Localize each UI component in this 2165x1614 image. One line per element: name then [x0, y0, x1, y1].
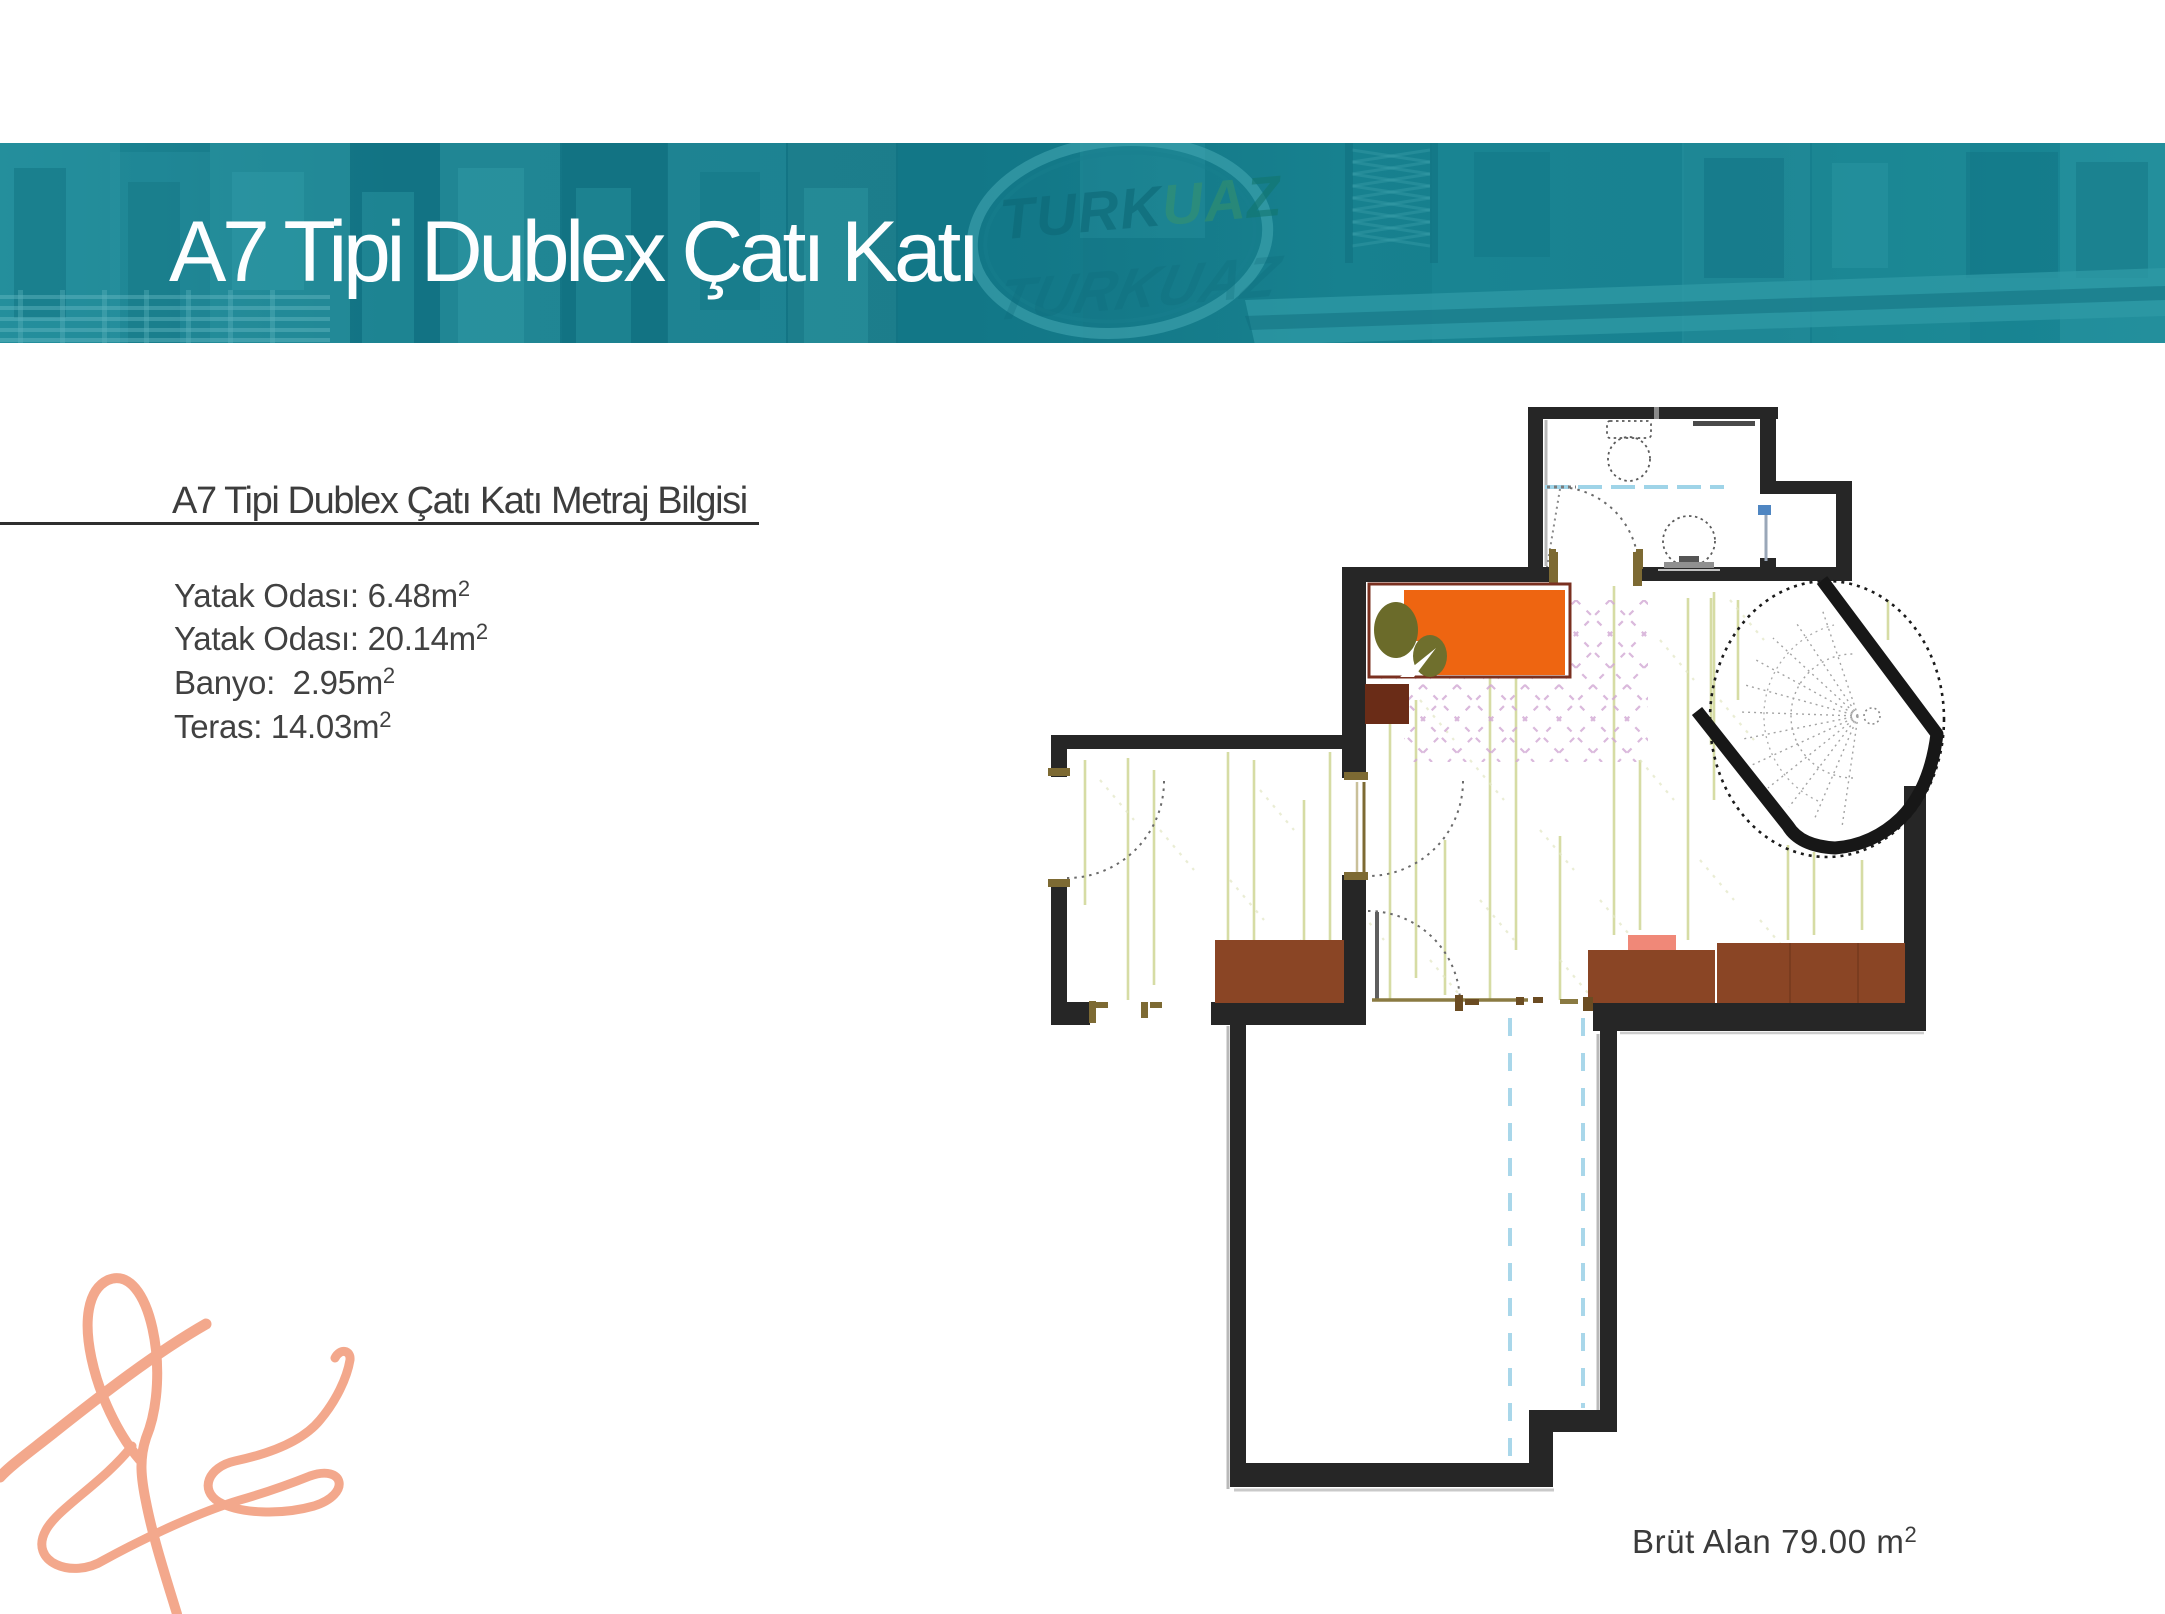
svg-text:Teras: 14.03m2: Teras: 14.03m2	[174, 707, 391, 745]
svg-text:Brüt Alan 79.00 m2: Brüt Alan 79.00 m2	[1632, 1522, 1917, 1560]
svg-text:Yatak Odası: 20.14m2: Yatak Odası: 20.14m2	[174, 619, 488, 657]
svg-text:Yatak Odası: 6.48m2: Yatak Odası: 6.48m2	[174, 576, 470, 614]
svg-text:A7 Tipi Dublex Çatı Katı Metra: A7 Tipi Dublex Çatı Katı Metraj Bilgisi	[172, 480, 747, 522]
svg-text:A7 Tipi Dublex Çatı Katı: A7 Tipi Dublex Çatı Katı	[169, 204, 976, 300]
svg-text:Banyo: 2.95m2: Banyo: 2.95m2	[174, 663, 395, 701]
